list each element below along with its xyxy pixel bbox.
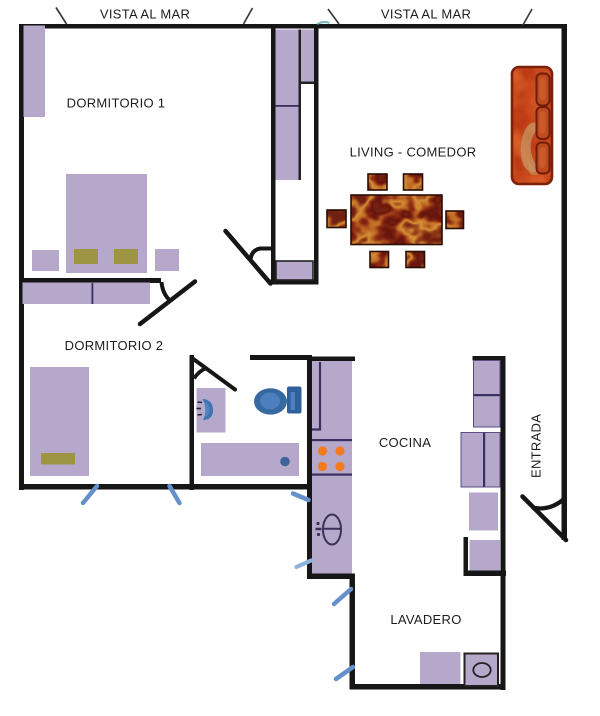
svg-text:COCINA: COCINA (379, 435, 431, 450)
svg-text:DORMITORIO 2: DORMITORIO 2 (65, 338, 164, 353)
svg-text:VISTA AL MAR: VISTA AL MAR (100, 7, 190, 22)
svg-text:LAVADERO: LAVADERO (390, 612, 461, 627)
svg-text:ENTRADA: ENTRADA (529, 414, 544, 478)
svg-text:DORMITORIO 1: DORMITORIO 1 (67, 96, 166, 111)
svg-text:VISTA AL MAR: VISTA AL MAR (381, 7, 471, 22)
svg-text:LIVING - COMEDOR: LIVING - COMEDOR (350, 145, 477, 160)
